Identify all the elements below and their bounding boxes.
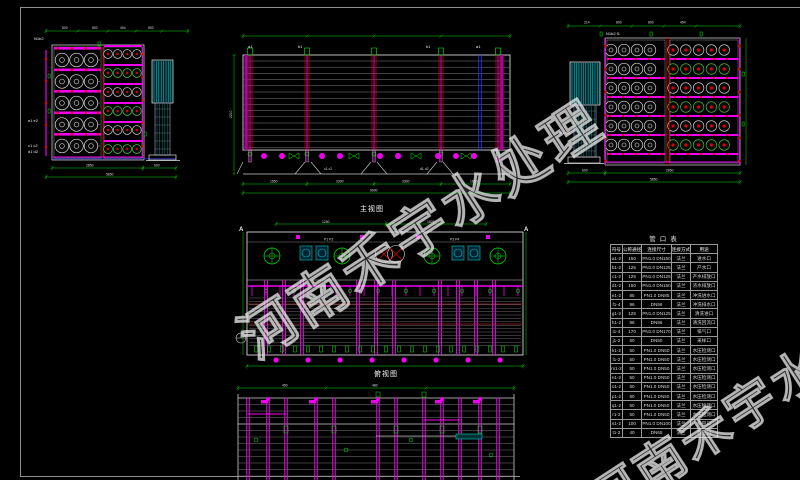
dim-label: 2850 bbox=[666, 169, 674, 173]
port-label: d1 d2 bbox=[28, 149, 39, 154]
table-row: t1-240DN65法兰放空口 bbox=[611, 428, 718, 437]
dim-label: 800 bbox=[148, 26, 154, 30]
bottom-view-labels: 450 480 bbox=[282, 384, 378, 388]
table-row: p1-250PN1.0 DN50法兰水压检测口 bbox=[611, 392, 718, 401]
dim-label: 1250 bbox=[322, 220, 330, 224]
front-view-title: 主视图 bbox=[360, 204, 384, 213]
table-row: q1-250PN1.0 DN50法兰水压检测口 bbox=[611, 401, 718, 410]
dim-label: 214 bbox=[584, 21, 590, 25]
nozzle-table-body: a1-2150PN1.0 DN150法兰进水口b1-2125PN1.0 DN12… bbox=[611, 254, 718, 438]
view-right-side: N1b2 f1 a1 a2 214 800 800 454 600 2850 5… bbox=[560, 12, 750, 196]
port-label: e1 e2 bbox=[28, 118, 39, 123]
top-view-geometry bbox=[236, 222, 526, 369]
dim-label: 600 bbox=[582, 169, 588, 173]
front-labels: a1 b1 b1 a1 c1 c2 d1 d2 1650 3300 3300 1… bbox=[229, 44, 481, 213]
right-side-geometry bbox=[564, 24, 746, 185]
view-bottom-partial: 450 480 bbox=[226, 380, 526, 480]
dim-label: 800 bbox=[616, 21, 622, 25]
nozzle-table-header: 符号 公称通径 连接尺寸 连接方式 用途 bbox=[611, 245, 718, 254]
port-label: a1 bbox=[248, 44, 253, 49]
dim-label: 5850 bbox=[650, 178, 658, 182]
table-row: m1-250PN1.0 DN50法兰水压检测口 bbox=[611, 364, 718, 373]
port-label: N1b2 bbox=[34, 36, 44, 41]
dim-label: 800 bbox=[92, 26, 98, 30]
table-row: l1-250PN1.0 DN50法兰水压检测口 bbox=[611, 355, 718, 364]
top-view-title: 俯视图 bbox=[374, 369, 398, 378]
table-row: e1-285PN1.0 DN85法兰冲洗进水口 bbox=[611, 290, 718, 299]
table-row: c1-2125PN1.0 DN125法兰产水排放口 bbox=[611, 272, 718, 281]
dim-label: 1650 bbox=[270, 180, 278, 184]
table-row: b1-2125PN1.0 DN125法兰产水口 bbox=[611, 263, 718, 272]
left-side-geometry bbox=[45, 29, 190, 180]
port-label: c1 c2 bbox=[324, 167, 332, 171]
table-row: i1-4170PN1.0 DN170法兰排气口 bbox=[611, 327, 718, 336]
table-row: a1-2150PN1.0 DN150法兰进水口 bbox=[611, 254, 718, 263]
dim-label: 454 bbox=[680, 21, 686, 25]
dim-label: 480 bbox=[372, 384, 378, 388]
pump-label: P1 P2 bbox=[324, 238, 333, 242]
view-left-side: N1b2 800 800 454 800 e1 e2 c1 c2 d1 d2 2… bbox=[28, 14, 196, 196]
view-top: A A 1250 1525 P1 P2 P3 P4 俯视图 bbox=[236, 218, 532, 380]
section-mark-a-right: A bbox=[524, 227, 529, 233]
dim-label: 1525 bbox=[427, 220, 435, 224]
port-label: N1b2 f1 bbox=[606, 31, 621, 36]
dim-label: 5850 bbox=[106, 173, 114, 177]
table-row: n1-250PN1.0 DN50法兰水压检测口 bbox=[611, 373, 718, 382]
frame-top-border bbox=[20, 7, 800, 8]
nozzle-table: 管口表 符号 公称通径 连接尺寸 连接方式 用途 a1-2150PN1.0 DN… bbox=[610, 233, 720, 438]
section-mark-a-left: A bbox=[239, 227, 244, 233]
bottom-view-geometry bbox=[237, 386, 516, 480]
view-front: a1 b1 b1 a1 c1 c2 d1 d2 1650 3300 3300 1… bbox=[226, 22, 524, 218]
port-label: a1 bbox=[476, 44, 481, 49]
dim-label: 9900 bbox=[370, 189, 378, 193]
port-label: c1 c2 bbox=[28, 143, 38, 148]
dim-label: 450 bbox=[282, 384, 288, 388]
table-row: r1-250PN1.0 DN50法兰水压检测口 bbox=[611, 410, 718, 419]
table-row: j1-250DN50法兰采样口 bbox=[611, 336, 718, 345]
table-row: g1-2125PN1.0 DN125法兰清洗进口 bbox=[611, 309, 718, 318]
front-geometry bbox=[233, 34, 517, 196]
dim-label: 2850 bbox=[86, 164, 94, 168]
table-row: s1-2100PN1.0 DN100法兰排空口 bbox=[611, 419, 718, 428]
table-row: d1-2150PN1.0 DN150法兰浓水排放口 bbox=[611, 281, 718, 290]
dim-label: 2210 bbox=[229, 110, 233, 118]
table-row: o1-250PN1.0 DN50法兰水压检测口 bbox=[611, 382, 718, 391]
pump-label: P3 P4 bbox=[450, 238, 459, 242]
table-row: k1-250PN1.0 DN50法兰水压检测口 bbox=[611, 346, 718, 355]
dim-label: 600 bbox=[154, 164, 160, 168]
port-label: d1 d2 bbox=[420, 167, 429, 171]
dim-label: 3300 bbox=[336, 180, 344, 184]
table-row: h1-296DN96法兰清洗回流口 bbox=[611, 318, 718, 327]
dim-label: 800 bbox=[62, 26, 68, 30]
dim-label: 1650 bbox=[470, 180, 478, 184]
dim-label: 454 bbox=[120, 26, 126, 30]
cad-canvas: N1b2 800 800 454 800 e1 e2 c1 c2 d1 d2 2… bbox=[0, 0, 800, 480]
frame-left-border bbox=[20, 7, 21, 477]
port-label: a1 a2 bbox=[560, 130, 571, 135]
port-label: b1 bbox=[298, 44, 303, 49]
port-label: b1 bbox=[426, 44, 431, 49]
table-row: f1-496DN96法兰冲洗排水口 bbox=[611, 300, 718, 309]
dim-label: 3300 bbox=[402, 180, 410, 184]
nozzle-table-title: 管口表 bbox=[610, 233, 720, 243]
dim-label: 800 bbox=[648, 21, 654, 25]
